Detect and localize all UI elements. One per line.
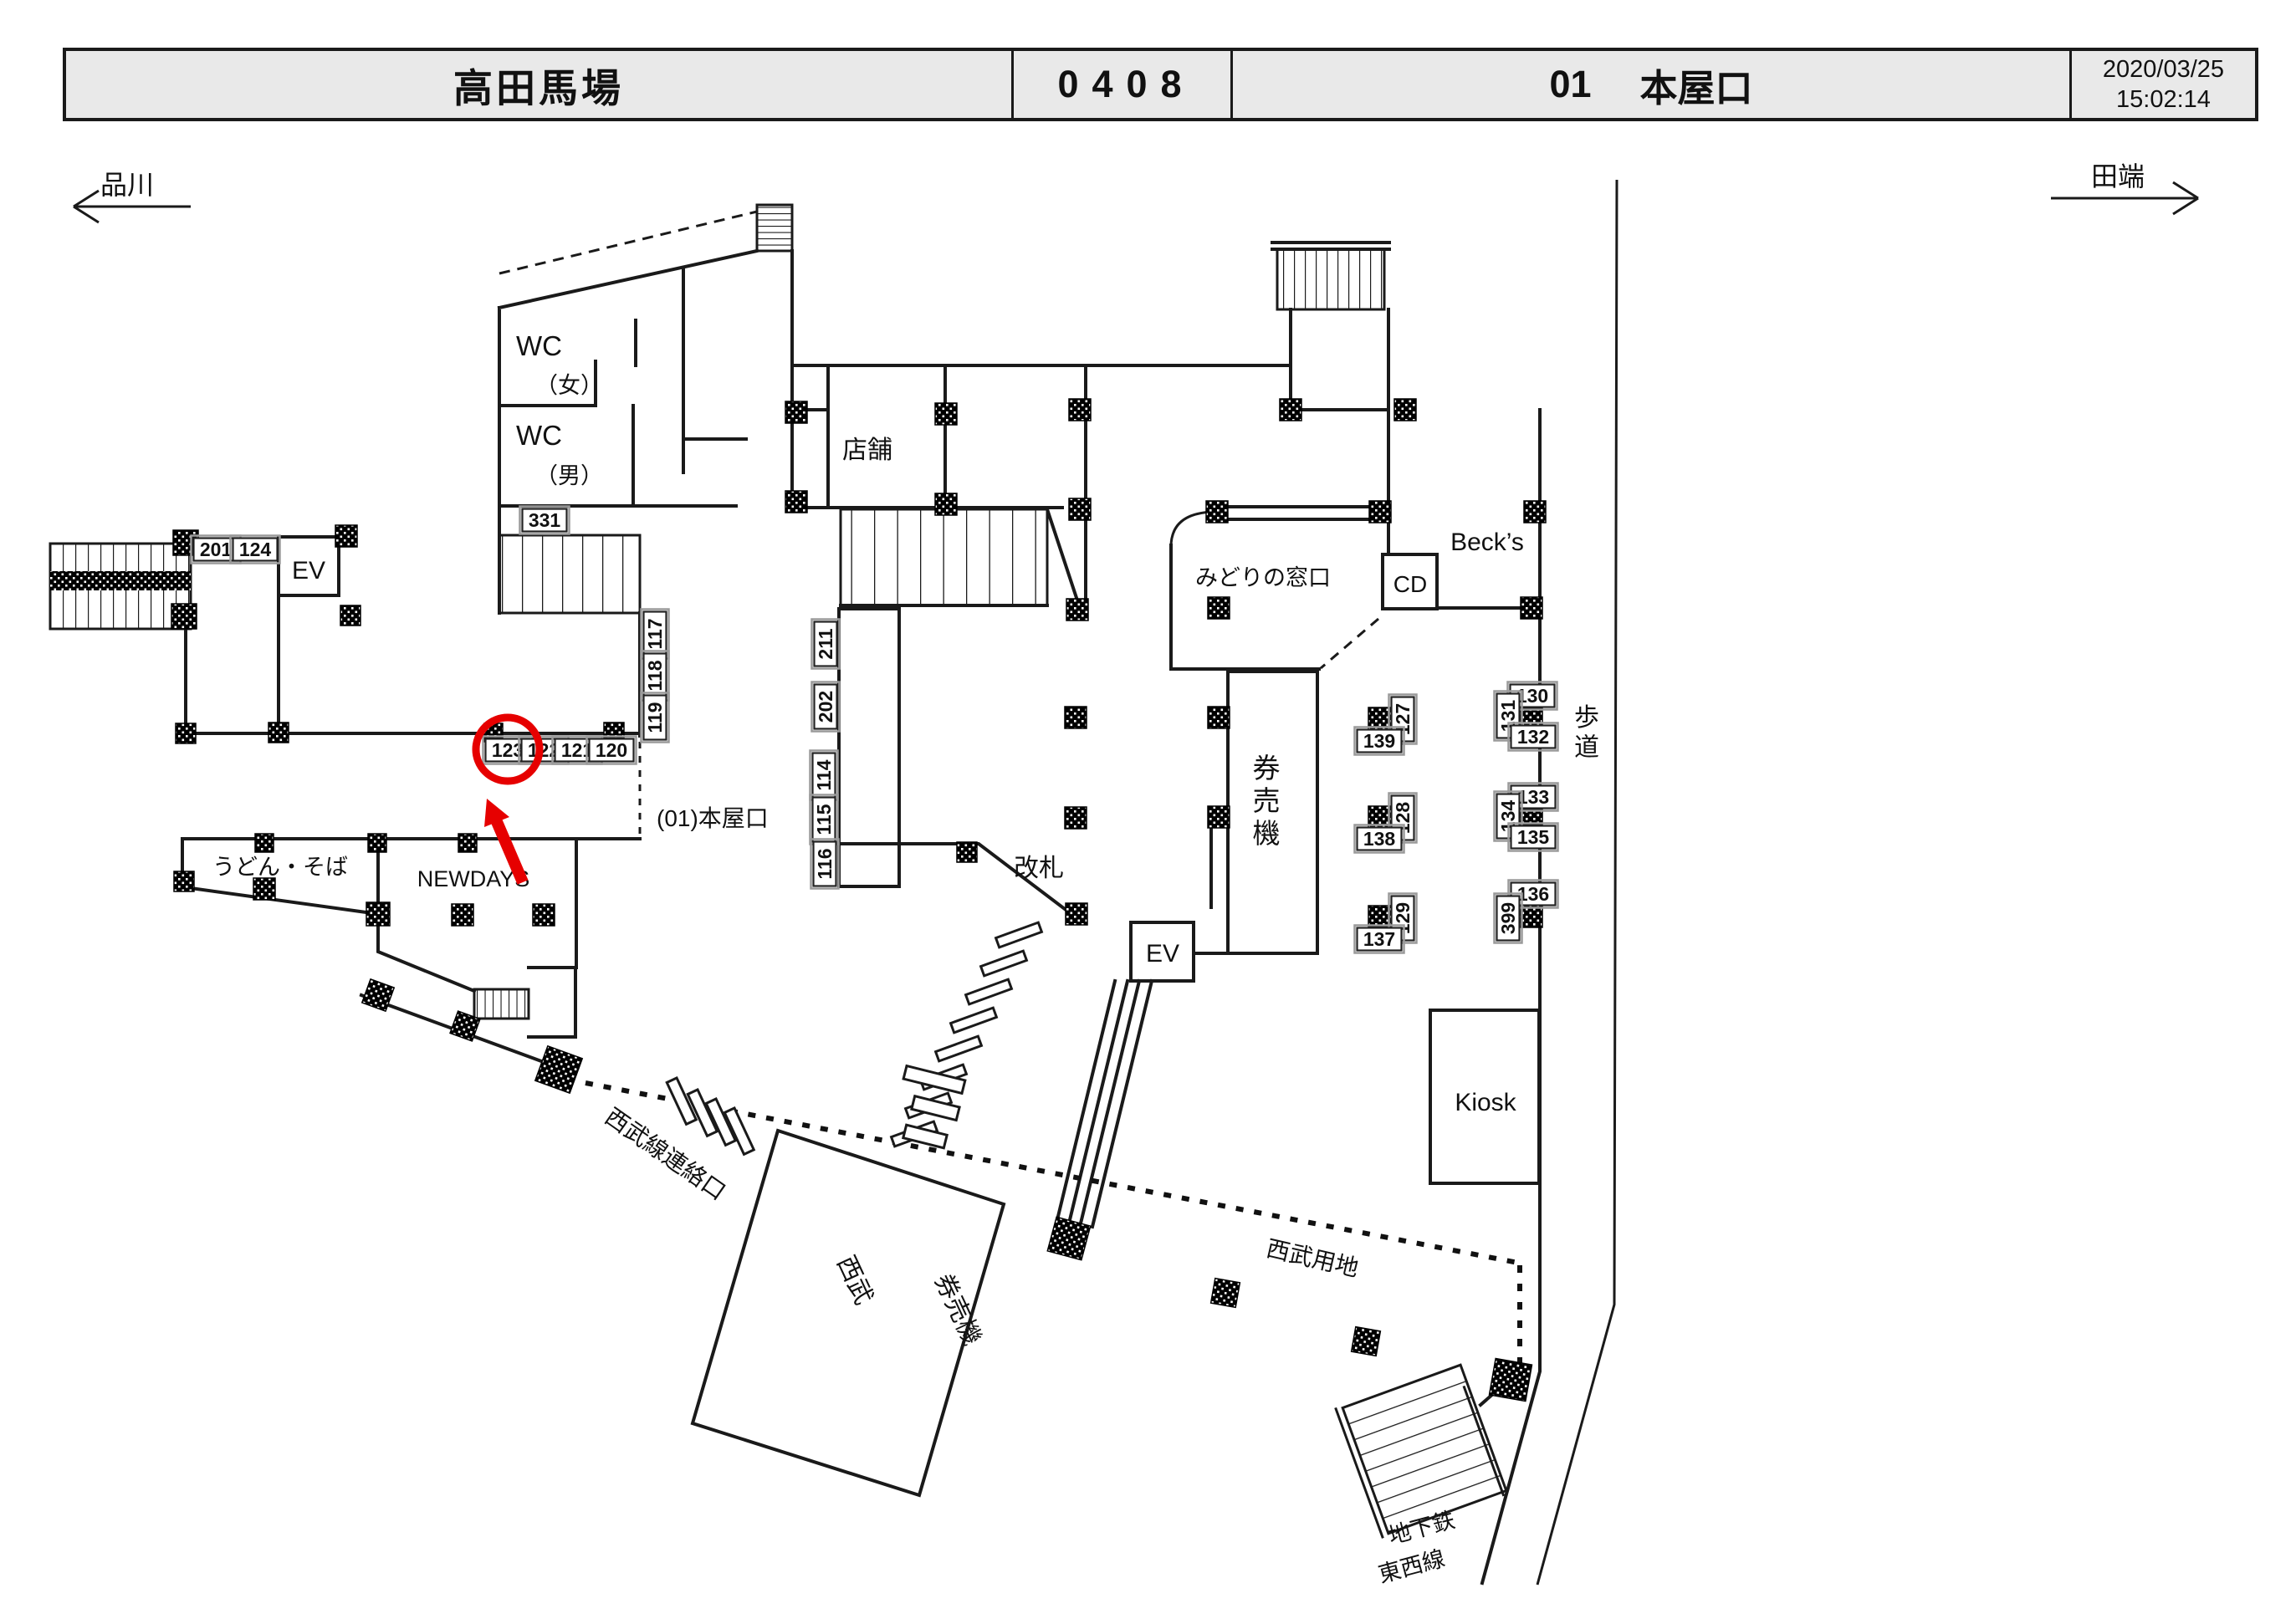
tag-138: 138 xyxy=(1355,825,1404,853)
pillar xyxy=(368,834,386,852)
tag-132: 132 xyxy=(1509,723,1558,751)
label-wc-upper: WC xyxy=(516,330,562,361)
label-cd: CD xyxy=(1393,571,1427,597)
timestamp: 2020/03/25 15:02:14 xyxy=(2072,51,2255,118)
label-tenpo: 店舗 xyxy=(842,437,892,464)
station-code: 0408 xyxy=(1014,51,1233,118)
pillar xyxy=(340,605,361,626)
station-name: 高田馬場 xyxy=(66,51,1014,118)
label-ev-west: EV xyxy=(292,557,325,585)
label-kembaiki-seibu: 券売機 xyxy=(929,1269,986,1350)
tag-115: 115 xyxy=(811,795,838,845)
svg-text:118: 118 xyxy=(644,660,666,691)
label-seibu: 西武 xyxy=(831,1252,877,1309)
pillar xyxy=(1047,1217,1090,1259)
pillar xyxy=(452,904,473,926)
svg-text:211: 211 xyxy=(815,628,836,659)
direction-shinagawa-label: 品川 xyxy=(100,170,154,200)
pillar xyxy=(935,403,957,425)
pillar xyxy=(533,904,555,926)
label-wc-lower: WC xyxy=(516,420,562,451)
pillar xyxy=(535,1046,582,1093)
pillar xyxy=(366,902,390,926)
label-midori-no-madoguchi: みどりの窓口 xyxy=(1195,565,1331,590)
stairs-subway xyxy=(1336,1362,1508,1540)
gate-title: 01 本屋口 xyxy=(1233,51,2072,118)
pillar xyxy=(935,493,957,515)
time: 15:02:14 xyxy=(2116,84,2211,115)
svg-text:116: 116 xyxy=(814,848,836,879)
direction-tabata-label: 田端 xyxy=(2091,161,2145,192)
pillar xyxy=(957,842,977,862)
date: 2020/03/25 xyxy=(2103,54,2224,84)
title-bar: 高田馬場 0408 01 本屋口 2020/03/25 15:02:14 xyxy=(63,48,2258,121)
pillar xyxy=(1065,707,1087,728)
tag-202: 202 xyxy=(812,682,840,732)
tag-124: 124 xyxy=(231,536,280,564)
label-kembaiki-station: 券売機 xyxy=(1253,753,1281,849)
tag-114: 114 xyxy=(811,751,838,800)
svg-text:132: 132 xyxy=(1517,726,1549,748)
tag-399: 399 xyxy=(1495,894,1522,943)
svg-text:139: 139 xyxy=(1363,730,1395,752)
tag-116: 116 xyxy=(811,840,839,889)
escalator-top-center xyxy=(757,205,792,251)
svg-text:138: 138 xyxy=(1363,828,1396,850)
cd-dashed-line xyxy=(1321,619,1378,668)
svg-text:135: 135 xyxy=(1517,826,1550,848)
stairs-central xyxy=(841,509,1047,605)
svg-text:399: 399 xyxy=(1497,902,1519,934)
stairs-331-band xyxy=(499,535,640,613)
label-seibu-yochi: 西武用地 xyxy=(1264,1235,1361,1281)
svg-text:331: 331 xyxy=(529,509,561,531)
roof-dashed-line xyxy=(499,212,757,273)
label-chikatetsu-line2: 東西線 xyxy=(1376,1545,1448,1587)
pillar xyxy=(1280,399,1301,421)
screenshot-root: 品川 田端 WC（女）WC（男）店舗みどりの窓口Beck’sCDEVEV改札券売… xyxy=(0,0,2296,1624)
pillar xyxy=(1066,599,1088,620)
direction-shinagawa: 品川 xyxy=(74,170,191,222)
seibu-ticket-machines xyxy=(667,1066,965,1155)
label-wc-upper-female: （女） xyxy=(535,373,603,398)
pillar xyxy=(253,878,275,900)
pillar xyxy=(1521,597,1542,619)
pillar xyxy=(1066,903,1087,925)
tag-331: 331 xyxy=(520,507,570,534)
tag-120: 120 xyxy=(587,737,637,764)
svg-text:119: 119 xyxy=(644,702,666,733)
pillar xyxy=(1490,1359,1532,1402)
pillar xyxy=(1394,399,1416,421)
pillar xyxy=(1206,501,1228,523)
pillar xyxy=(174,871,194,891)
pillar xyxy=(1369,501,1391,523)
tag-211: 211 xyxy=(812,620,840,669)
tag-139: 139 xyxy=(1355,728,1404,755)
pillar xyxy=(1211,1279,1240,1308)
pillar xyxy=(458,834,477,852)
pillar xyxy=(1208,597,1230,619)
gate-number: 01 xyxy=(1549,63,1591,106)
label-honya-guchi: (01)本屋口 xyxy=(657,805,769,831)
svg-text:117: 117 xyxy=(644,618,666,649)
pillar xyxy=(1069,498,1091,520)
pillar xyxy=(1065,807,1087,829)
label-kaisatsu: 改札 xyxy=(1014,855,1064,882)
pillar xyxy=(268,723,289,743)
tag-135: 135 xyxy=(1509,824,1558,851)
pillar xyxy=(1524,501,1546,523)
tag-119: 119 xyxy=(642,693,669,743)
stairs-small-southwest xyxy=(474,989,529,1019)
pillar xyxy=(171,604,197,629)
ticket-gate-lanes xyxy=(892,922,1042,1147)
platform-west xyxy=(50,544,191,629)
label-hodo: 歩道 xyxy=(1574,704,1599,761)
pillar xyxy=(176,723,196,743)
tag-137: 137 xyxy=(1355,926,1404,953)
pillar xyxy=(255,834,274,852)
label-kiosk: Kiosk xyxy=(1455,1089,1516,1116)
stairs-northeast xyxy=(1277,249,1384,309)
svg-text:120: 120 xyxy=(596,739,627,761)
svg-text:124: 124 xyxy=(239,539,272,560)
label-ev-center: EV xyxy=(1146,940,1179,968)
direction-tabata: 田端 xyxy=(2051,161,2198,214)
label-becks: Beck’s xyxy=(1450,529,1524,556)
svg-text:115: 115 xyxy=(813,804,835,835)
svg-text:114: 114 xyxy=(813,759,835,790)
pillar xyxy=(785,401,807,423)
label-udon-soba: うどん・そば xyxy=(212,855,348,880)
svg-text:201: 201 xyxy=(200,539,233,560)
gate-name: 本屋口 xyxy=(1640,58,1753,112)
svg-text:202: 202 xyxy=(815,691,836,723)
pillar xyxy=(1208,806,1230,828)
svg-text:137: 137 xyxy=(1363,928,1395,950)
pillar xyxy=(1069,399,1091,421)
pillar xyxy=(785,491,807,513)
pillar xyxy=(335,525,357,547)
pillar xyxy=(1352,1327,1381,1356)
floor-plan: 品川 田端 WC（女）WC（男）店舗みどりの窓口Beck’sCDEVEV改札券売… xyxy=(0,0,2296,1624)
label-wc-lower-male: （男） xyxy=(535,463,603,488)
pillar xyxy=(1208,707,1230,728)
